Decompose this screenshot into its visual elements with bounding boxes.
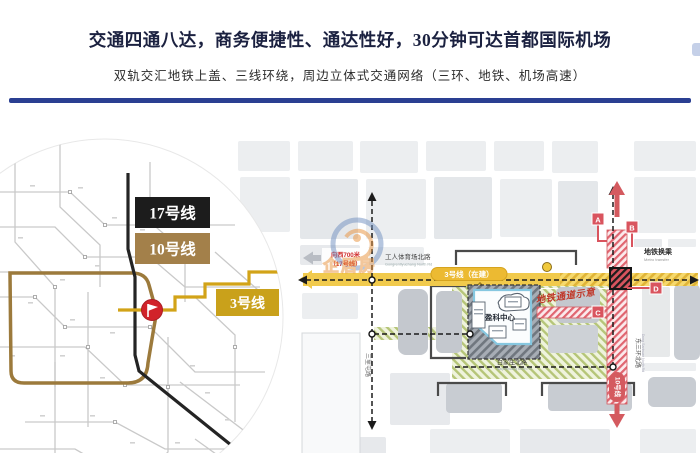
road-south-label: 白家庄北路 — [497, 359, 527, 367]
line17-label: 17号线 — [149, 204, 196, 223]
svg-text:3号线（在建）: 3号线（在建） — [444, 269, 493, 279]
road-marker-dot — [543, 263, 552, 272]
road-north-label: 工人体育场北路 — [385, 252, 431, 261]
line3-badge: 3号线（在建） — [431, 268, 507, 281]
svg-text:B: B — [629, 224, 635, 233]
road-north-label-en: Gongrentiyuchang North Rd — [385, 263, 432, 267]
line3-label: 3号线 — [230, 295, 265, 312]
road-west-label: 三里屯路 — [364, 353, 372, 377]
page-title: 交通四通八达，商务便捷性、通达性好，30分钟可达首都国际机场 — [0, 27, 700, 52]
watermark-text: 企居房 — [322, 256, 377, 275]
road-east-label-en: Dong Sanhuan North Rd — [641, 334, 645, 372]
page-subtitle: 双轨交汇地铁上盖、三线环绕，周边立体式交通网络（三环、地铁、机场高速） — [0, 65, 700, 84]
maps-svg: 17号线 10号线 3号线 — [0, 137, 700, 453]
svg-text:Metro transfer: Metro transfer — [644, 257, 670, 262]
building-label: 盈科中心 — [484, 312, 515, 322]
svg-text:A: A — [595, 216, 601, 225]
metro-transfer-label: 地铁换乘 Metro transfer — [644, 247, 673, 262]
project-building-block: 盈科中心 — [468, 285, 540, 359]
metro-band-top — [607, 230, 627, 268]
svg-text:地铁换乘: 地铁换乘 — [644, 247, 673, 256]
corner-chip — [692, 43, 700, 56]
transfer-station-square — [610, 268, 631, 289]
divider-bar — [9, 98, 691, 103]
road-south-label-en: Baijiazhuang North Rd — [497, 367, 532, 371]
location-pin-icon — [142, 300, 163, 321]
road-east-label: 东三环北路 — [634, 338, 642, 368]
svg-text:C: C — [595, 309, 601, 318]
svg-text:D: D — [653, 285, 659, 294]
maps-area: 17号线 10号线 3号线 — [0, 137, 700, 453]
line10-badge: 10号线 — [609, 372, 625, 402]
siteplan-open-lot — [302, 333, 360, 453]
svg-text:10号线: 10号线 — [613, 377, 622, 398]
line10-label: 10号线 — [149, 240, 196, 259]
slide: 交通四通八达，商务便捷性、通达性好，30分钟可达首都国际机场 双轨交汇地铁上盖、… — [0, 27, 700, 453]
